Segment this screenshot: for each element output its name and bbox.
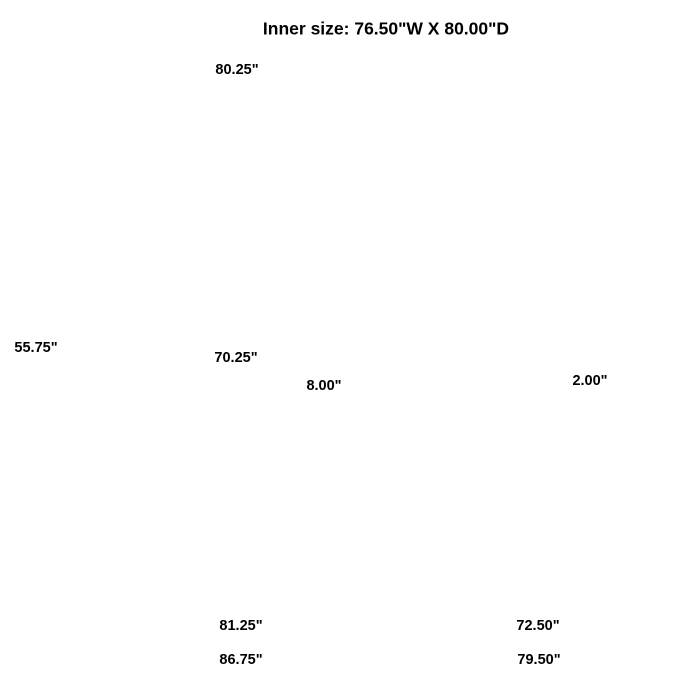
diagram-title: Inner size: 76.50"W X 80.00"D: [263, 19, 509, 40]
dim-slat-spacing-label: 8.00": [303, 379, 344, 395]
dim-base-depth-label: 72.50": [513, 619, 562, 635]
dim-base-width-label: 81.25": [216, 619, 265, 635]
dim-inner-width-label: 70.25": [211, 351, 260, 367]
dim-headboard-width-label: 80.25": [212, 63, 261, 79]
bed-line-drawing: [0, 0, 700, 700]
dim-slat-thickness-label: 2.00": [569, 374, 610, 390]
dim-overall-depth-label: 79.50": [514, 653, 563, 669]
dim-overall-width-label: 86.75": [216, 653, 265, 669]
bed-dimension-diagram: Inner size: 76.50"W X 80.00"D 80.25" 55.…: [0, 0, 700, 700]
dim-headboard-height-label: 55.75": [11, 341, 60, 357]
